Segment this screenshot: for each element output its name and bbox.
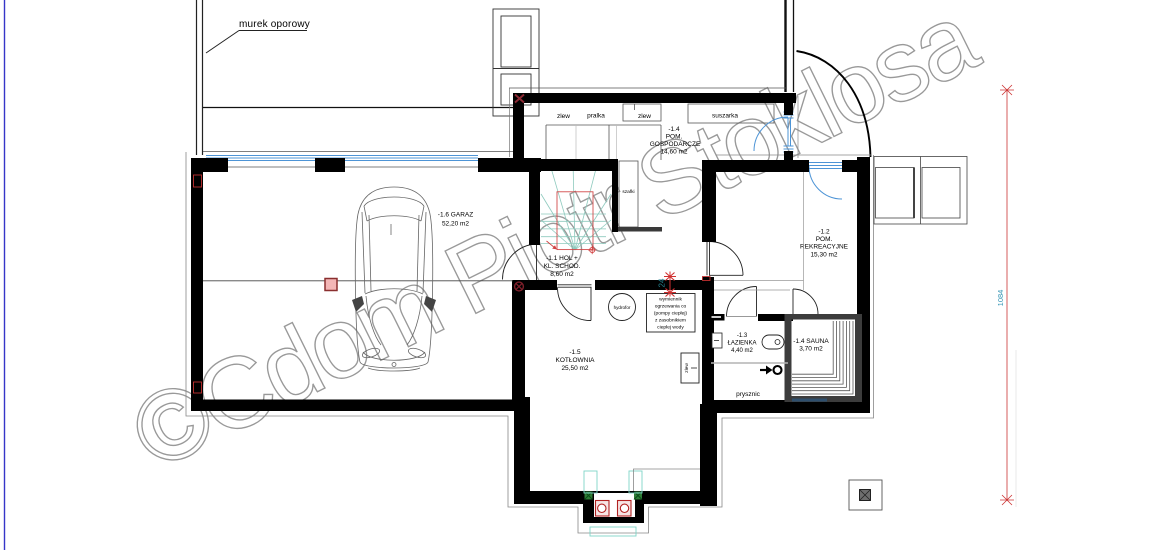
svg-text:ogrzewania co: ogrzewania co xyxy=(655,304,687,310)
svg-text:-1.2: -1.2 xyxy=(818,229,830,236)
svg-text:wymiennik: wymiennik xyxy=(659,297,682,303)
svg-text:(pompy ciepłej): (pompy ciepłej) xyxy=(654,311,688,317)
svg-text:ŁAZIENKA: ŁAZIENKA xyxy=(727,341,756,347)
svg-text:zlew: zlew xyxy=(684,363,690,373)
svg-text:-1.3: -1.3 xyxy=(737,333,748,339)
svg-text:POM.: POM. xyxy=(816,236,833,243)
svg-text:hydrofor: hydrofor xyxy=(614,305,631,310)
svg-text:KL. SCHOD.: KL. SCHOD. xyxy=(544,263,581,270)
svg-text:25,50 m2: 25,50 m2 xyxy=(561,365,588,372)
svg-text:KOTŁOWNIA: KOTŁOWNIA xyxy=(555,357,595,364)
svg-text:ciepłej wody: ciepłej wody xyxy=(657,325,684,331)
svg-text:POM.: POM. xyxy=(666,134,683,141)
svg-text:suszarka: suszarka xyxy=(712,113,738,120)
svg-text:zlew: zlew xyxy=(638,113,651,120)
svg-text:murek oporowy: murek oporowy xyxy=(239,19,310,30)
svg-text:szafki: szafki xyxy=(622,189,634,195)
svg-text:z zasobnikiem: z zasobnikiem xyxy=(655,318,686,324)
svg-text:GOSPODARCZE: GOSPODARCZE xyxy=(650,141,701,148)
svg-text:15,30 m2: 15,30 m2 xyxy=(810,252,837,259)
svg-text:3,70 m2: 3,70 m2 xyxy=(799,346,823,353)
svg-text:24: 24 xyxy=(658,278,667,287)
svg-text:REKREACYJNE: REKREACYJNE xyxy=(800,244,849,251)
svg-text:zlew: zlew xyxy=(557,113,570,120)
svg-text:-1.4: -1.4 xyxy=(668,126,680,133)
svg-text:-1.1 HOL +: -1.1 HOL + xyxy=(546,255,578,262)
svg-text:14,60 m2: 14,60 m2 xyxy=(660,149,687,156)
svg-text:4,40 m2: 4,40 m2 xyxy=(731,348,753,354)
svg-text:52,20 m2: 52,20 m2 xyxy=(442,221,469,228)
svg-text:8,60 m2: 8,60 m2 xyxy=(550,271,574,278)
svg-text:prysznic: prysznic xyxy=(736,391,761,398)
svg-text:1084: 1084 xyxy=(996,290,1005,307)
svg-text:-1.4 SAUNA: -1.4 SAUNA xyxy=(793,338,829,345)
svg-text:pralka: pralka xyxy=(587,113,605,120)
svg-text:-1.6 GARAZ: -1.6 GARAZ xyxy=(438,212,473,219)
svg-text:-1.5: -1.5 xyxy=(569,349,581,356)
